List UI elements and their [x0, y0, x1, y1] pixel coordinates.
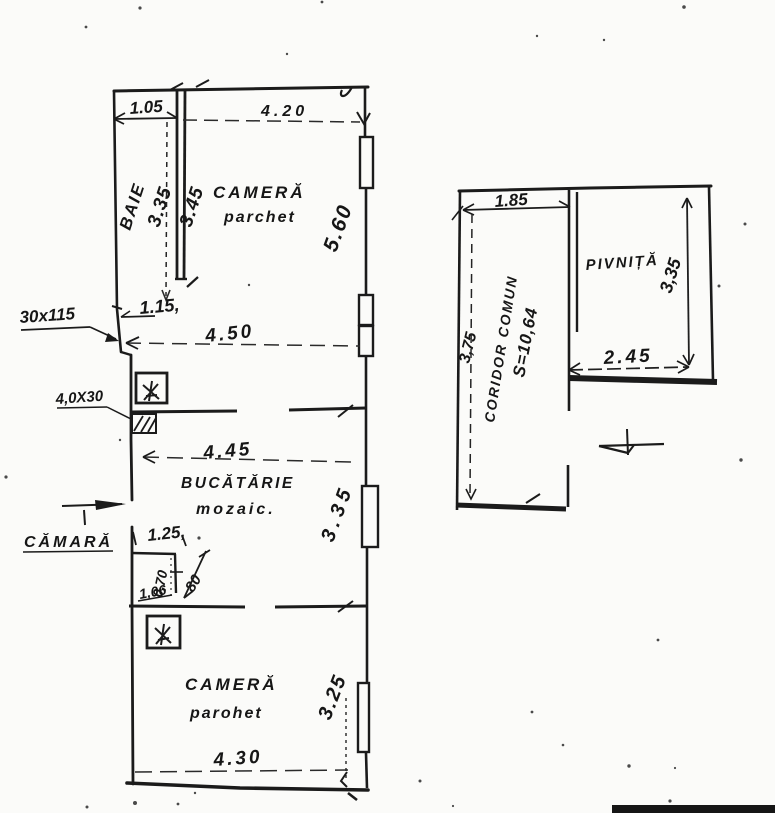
svg-text:CAMERĂ: CAMERĂ — [213, 183, 306, 202]
svg-text:2.45: 2.45 — [602, 345, 653, 369]
svg-text:1.15,: 1.15, — [139, 295, 181, 318]
svg-text:1.05: 1.05 — [129, 97, 164, 118]
svg-text:CĂMARĂ: CĂMARĂ — [24, 532, 113, 551]
svg-text:mozaic.: mozaic. — [196, 501, 276, 518]
svg-text:4.20: 4.20 — [260, 103, 308, 120]
svg-text:1.25,: 1.25, — [146, 522, 186, 545]
svg-text:parohet: parohet — [189, 705, 263, 722]
svg-text:CAMERĂ: CAMERĂ — [185, 675, 278, 694]
svg-text:4,0X30: 4,0X30 — [54, 388, 104, 408]
svg-text:4.30: 4.30 — [212, 747, 263, 771]
svg-text:4.45: 4.45 — [202, 439, 254, 464]
svg-text:30x115: 30x115 — [19, 304, 76, 327]
svg-text:BUCĂTĂRIE: BUCĂTĂRIE — [181, 475, 295, 492]
svg-text:parchet: parchet — [223, 209, 296, 226]
